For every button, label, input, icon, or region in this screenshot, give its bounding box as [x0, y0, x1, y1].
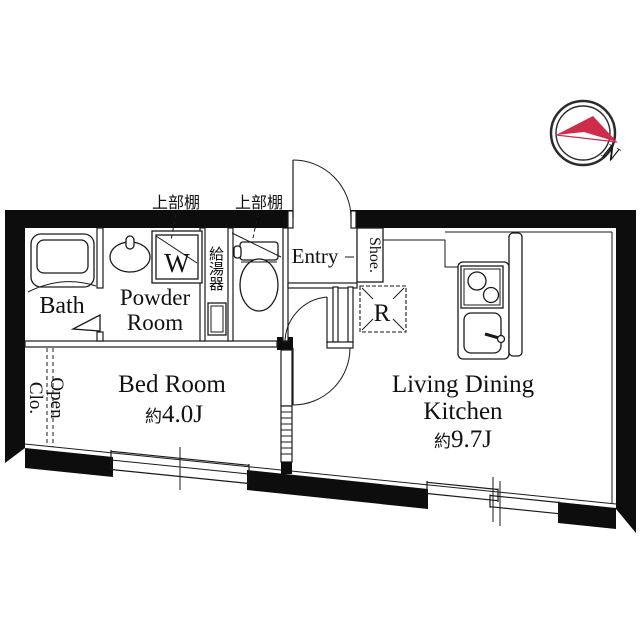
label-water-heater: 給湯器	[207, 246, 225, 291]
label-bedroom: Bed Room	[118, 371, 226, 398]
wall-entry-ldk	[348, 287, 353, 342]
wall-right	[616, 210, 636, 533]
wall-hall-closet	[333, 287, 338, 342]
label-ldk-area-prefix: 約	[434, 432, 451, 452]
label-entry: Entry	[292, 244, 339, 268]
label-bath: Bath	[39, 293, 84, 319]
wall-left	[5, 210, 25, 463]
wall-toilet-hall	[283, 228, 288, 341]
toilet-tank	[240, 242, 278, 260]
sliding-partition	[281, 406, 292, 462]
wall-top-left	[5, 210, 293, 228]
label-washer: W	[164, 248, 190, 278]
label-shelf-right: 上部棚	[235, 193, 283, 212]
label-powder-2: Room	[127, 310, 183, 335]
wall-bed-ldk-upper	[281, 350, 292, 406]
wall-bath-powder-lower	[97, 332, 103, 341]
kitchen-sink	[464, 313, 501, 353]
floor-plan: N 上部棚 上部棚 Bath Powder Room W 給湯器 Entry S…	[0, 0, 640, 640]
water-heater	[208, 303, 226, 335]
wall-bath-powder-upper	[97, 228, 103, 288]
wall-bedroom-top	[25, 341, 277, 347]
label-open: Open	[46, 377, 67, 419]
kitchen-side-panel	[509, 233, 522, 356]
label-ldk-1: Living Dining	[392, 371, 535, 398]
label-bedroom-area-value: 4.0J	[162, 401, 203, 428]
wall-heater-toilet	[228, 228, 233, 341]
toilet-bowl	[240, 259, 278, 311]
label-clo: Clo.	[25, 382, 46, 414]
entry-jamb-right	[351, 211, 356, 228]
label-shelf-left: 上部棚	[152, 193, 200, 212]
wall-hall-cap	[327, 342, 353, 348]
wall-bed-ldk-foot	[281, 462, 292, 474]
label-powder-1: Powder	[120, 285, 191, 310]
label-ldk-area-value: 9.7J	[451, 426, 492, 453]
entry-jamb-left	[288, 211, 293, 228]
label-fridge: R	[374, 300, 391, 327]
stove-burner-large	[468, 272, 486, 290]
label-bedroom-area-prefix: 約	[145, 407, 162, 427]
label-shoe: Shoe.	[366, 237, 383, 273]
wall-top-right	[351, 210, 636, 228]
sink-faucet-knob	[498, 336, 505, 343]
stove-burner-small	[484, 288, 499, 303]
bathtub-inner	[37, 240, 88, 273]
label-ldk-2: Kitchen	[423, 398, 503, 425]
entry-step-line	[288, 283, 357, 288]
toilet-handle	[234, 246, 241, 258]
label-open-closet: Open Clo.	[25, 377, 67, 419]
washbasin-tap	[126, 236, 134, 249]
